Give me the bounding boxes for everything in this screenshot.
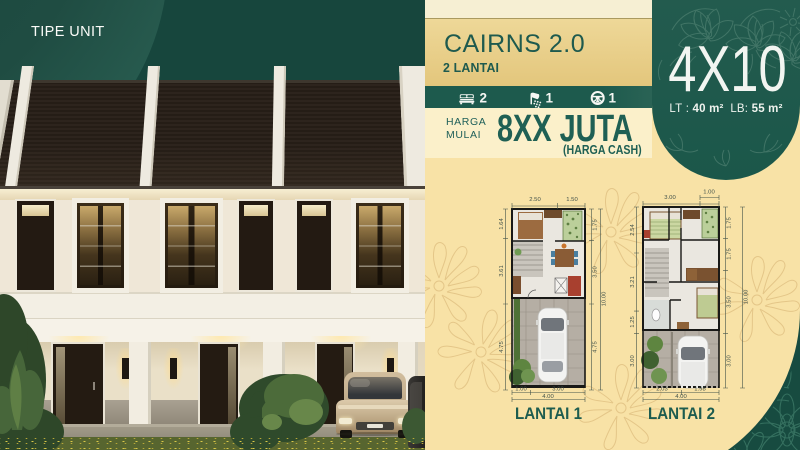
svg-text:2.03: 2.03 [656, 387, 668, 393]
svg-text:1.00: 1.00 [515, 387, 527, 393]
svg-text:1.98: 1.98 [694, 387, 706, 393]
svg-text:3.00: 3.00 [727, 355, 733, 367]
svg-text:10.00: 10.00 [744, 289, 750, 304]
svg-text:LANTAI 2: LANTAI 2 [648, 405, 715, 423]
svg-text:4.75: 4.75 [499, 341, 505, 353]
svg-text:2: 2 [480, 90, 488, 105]
svg-text:1.25: 1.25 [630, 316, 636, 328]
svg-text:3.00: 3.00 [630, 355, 636, 367]
svg-text:3.50: 3.50 [593, 266, 599, 278]
svg-text:3.21: 3.21 [630, 276, 636, 287]
svg-text:3.50: 3.50 [727, 296, 733, 308]
svg-text:3.00: 3.00 [664, 195, 676, 201]
svg-text:4.75: 4.75 [593, 341, 599, 353]
svg-text:1.75: 1.75 [727, 248, 733, 260]
svg-text:3.61: 3.61 [499, 265, 505, 276]
svg-text:1.75: 1.75 [593, 219, 599, 231]
svg-text:10.00: 10.00 [602, 291, 608, 306]
svg-text:1.75: 1.75 [727, 217, 733, 229]
svg-text:2.50: 2.50 [529, 197, 541, 203]
svg-text:3.00: 3.00 [552, 387, 564, 393]
svg-text:4.00: 4.00 [542, 394, 554, 400]
svg-text:1: 1 [609, 90, 617, 105]
svg-text:1.50: 1.50 [566, 197, 578, 203]
svg-text:1.00: 1.00 [703, 190, 715, 196]
svg-text:4.00: 4.00 [675, 394, 687, 400]
svg-text:LANTAI 1: LANTAI 1 [515, 405, 582, 423]
svg-text:2.54: 2.54 [630, 224, 636, 236]
svg-text:1.64: 1.64 [499, 218, 505, 230]
svg-text:1: 1 [546, 90, 554, 105]
